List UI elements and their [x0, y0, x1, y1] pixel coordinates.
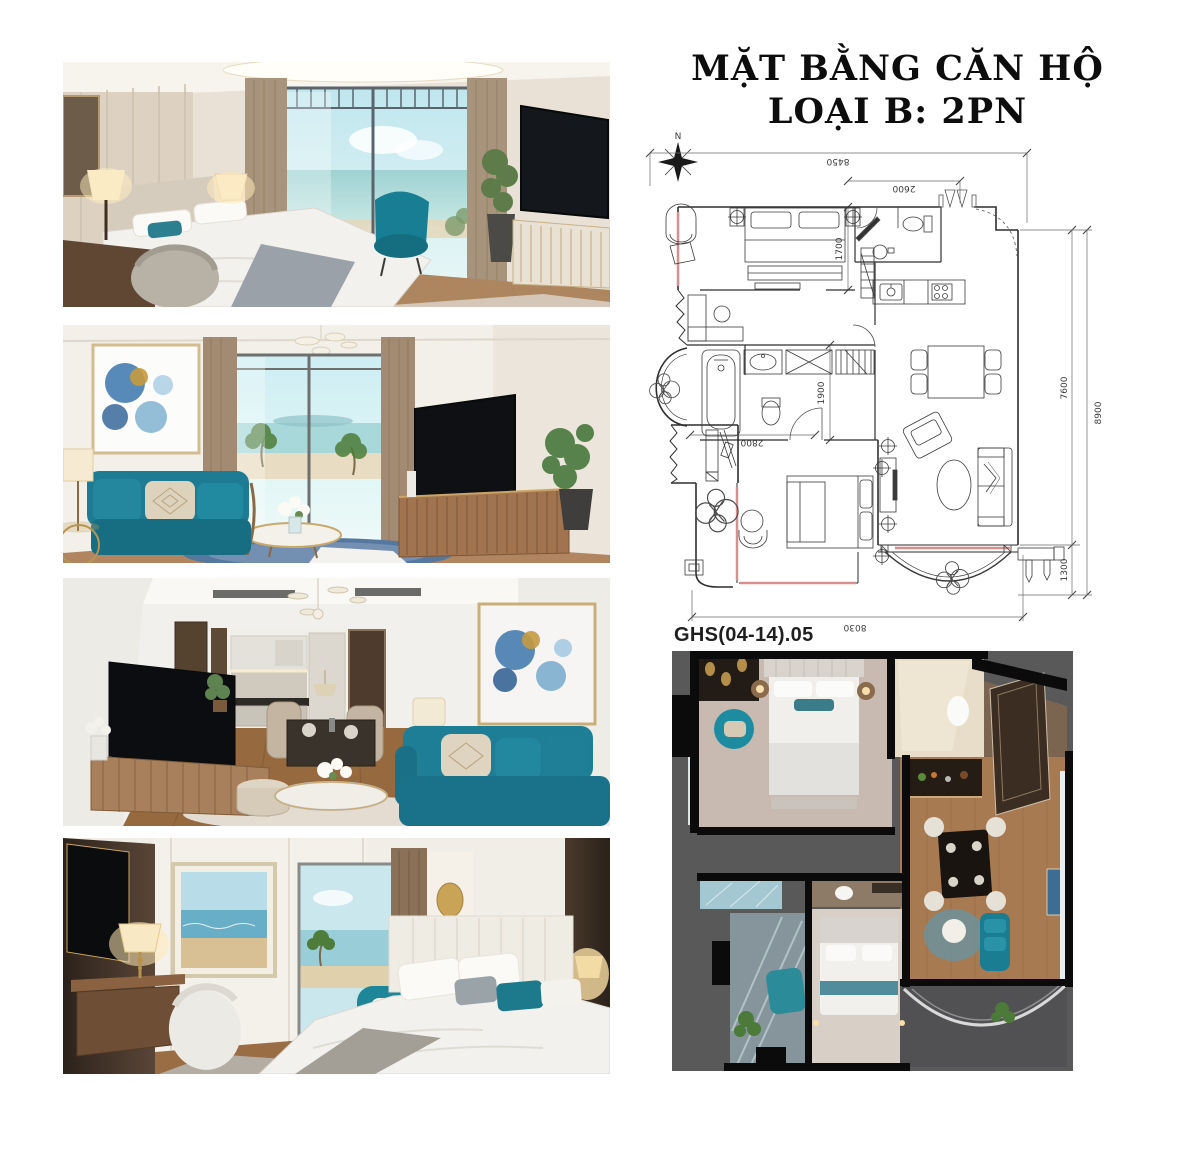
title-line-1: MẶT BẰNG CĂN HỘ — [640, 48, 1155, 91]
teal-sofa — [395, 726, 610, 826]
dim-bottom-overall: 8030 — [843, 622, 866, 632]
floor-plan-drawing: N 8450 2600 1700 1900 2800 7600 8900 130… — [640, 128, 1160, 645]
photo-living-dining-kitchen — [63, 578, 610, 826]
beach-painting — [173, 864, 275, 976]
window-highlights — [678, 212, 1010, 583]
dim-1900: 1900 — [817, 381, 827, 404]
second-bedroom-illustration — [63, 838, 610, 1074]
dim-2800: 2800 — [740, 437, 763, 447]
dimension-lines — [646, 149, 1092, 621]
living-room-illustration — [63, 325, 610, 563]
wall-art — [479, 604, 595, 724]
teal-sofa — [87, 471, 254, 555]
dim-1700: 1700 — [835, 237, 845, 260]
dim-top-overall: 8450 — [826, 156, 849, 166]
bedroom-sea-view-illustration — [63, 62, 610, 307]
photo-second-bedroom — [63, 838, 610, 1074]
photo-bedroom-sea-view — [63, 62, 610, 307]
apartment-3d-top-view — [672, 651, 1073, 1071]
dim-1300: 1300 — [1060, 558, 1070, 581]
wall-art — [93, 345, 199, 453]
tv — [521, 106, 608, 218]
dim-7600: 7600 — [1060, 376, 1070, 399]
title-line-2: LOẠI B: 2PN — [640, 91, 1155, 134]
page-title: MẶT BẰNG CĂN HỘ LOẠI B: 2PN — [640, 48, 1155, 133]
desk — [71, 974, 185, 1056]
tv — [415, 395, 515, 501]
photo-living-room-teal-sofa — [63, 325, 610, 563]
living-dining-illustration — [63, 578, 610, 826]
page: MẶT BẰNG CĂN HỘ LOẠI B: 2PN — [0, 0, 1200, 1150]
drawing-code: GHS(04-14).05 — [674, 624, 814, 647]
compass-icon: N — [658, 132, 698, 182]
compass-north-label: N — [675, 132, 682, 142]
dim-8900: 8900 — [1094, 401, 1104, 424]
dim-top-secondary: 2600 — [892, 183, 915, 193]
walls — [656, 207, 1018, 587]
